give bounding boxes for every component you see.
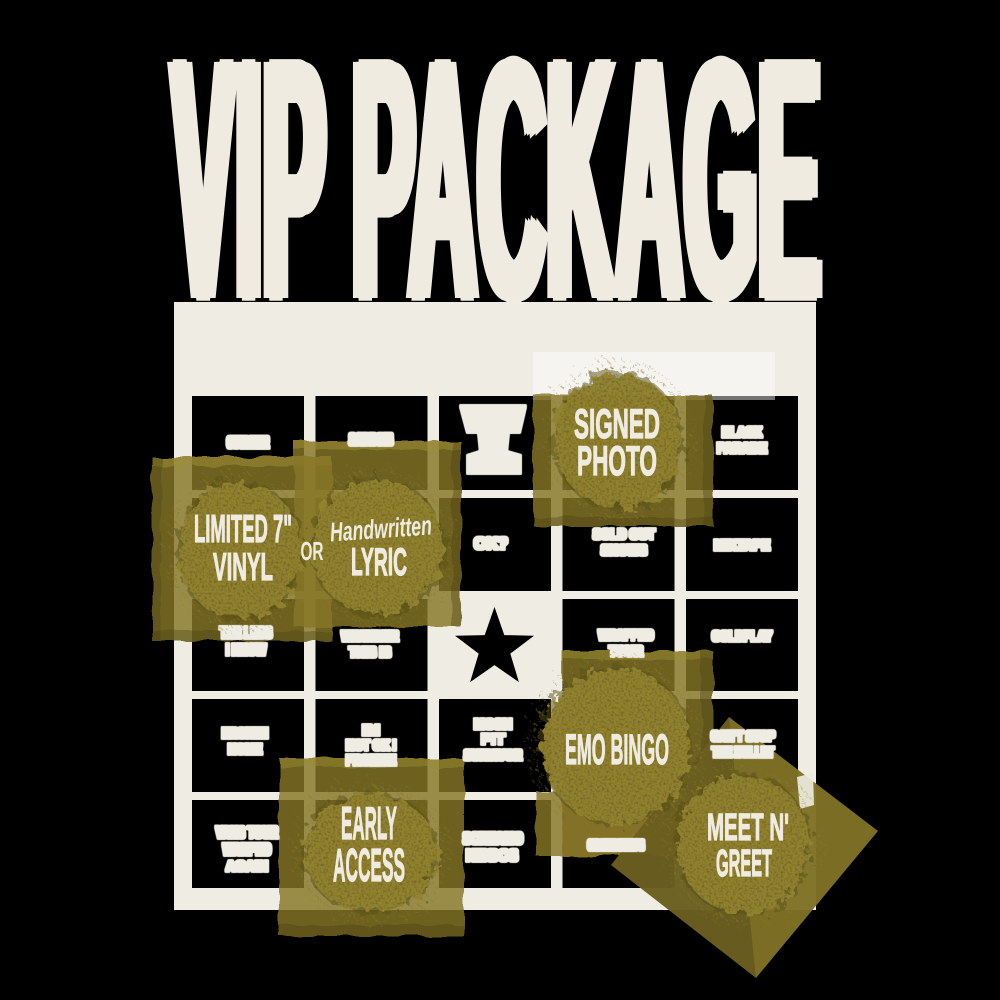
svg-text:OR: OR <box>301 536 324 566</box>
svg-text:THIS IS: THIS IS <box>349 644 391 661</box>
svg-text:HOME: HOME <box>228 741 262 758</box>
svg-text:THE LESS: THE LESS <box>220 625 272 642</box>
svg-text:BROKEN: BROKEN <box>222 725 268 742</box>
svg-text:THE BULLET: THE BULLET <box>712 744 774 761</box>
svg-text:WRAPPED: WRAPPED <box>599 627 654 644</box>
svg-text:PIT: PIT <box>481 731 505 748</box>
svg-text:ACCESS: ACCESS <box>333 839 405 891</box>
svg-text:PHOTO: PHOTO <box>577 437 657 484</box>
svg-text:I KNOW: I KNOW <box>226 642 267 659</box>
svg-text:TOUR: TOUR <box>609 643 643 660</box>
svg-text:LYRIC: LYRIC <box>351 541 407 584</box>
svg-text:AGAIN: AGAIN <box>226 858 268 875</box>
svg-text:PARADE: PARADE <box>717 440 767 457</box>
svg-text:BLACK: BLACK <box>722 424 762 441</box>
svg-text:LIMITED 7": LIMITED 7" <box>194 508 292 551</box>
svg-text:MIXTAPE: MIXTAPE <box>714 537 770 554</box>
svg-text:SURVIVOR: SURVIVOR <box>464 747 522 764</box>
svg-text:PROMISE: PROMISE <box>346 752 396 769</box>
svg-text:WHATEVER: WHATEVER <box>342 628 399 645</box>
svg-text:GUYLINER: GUYLINER <box>227 433 269 452</box>
svg-text:WARPED: WARPED <box>223 840 271 859</box>
svg-text:SHOWS: SHOWS <box>601 542 647 559</box>
svg-text:GREET: GREET <box>716 843 772 885</box>
svg-text:OK?: OK? <box>474 534 508 553</box>
svg-text:EMO BINGO: EMO BINGO <box>565 726 669 774</box>
svg-text:CROWDSURFS: CROWDSURFS <box>588 837 644 854</box>
svg-text:CAN'T STOP: CAN'T STOP <box>711 728 775 745</box>
svg-text:VINYL: VINYL <box>213 546 273 589</box>
svg-text:COLDPLAY: COLDPLAY <box>712 628 772 645</box>
svg-text:SADBOIS: SADBOIS <box>349 430 393 449</box>
svg-text:SOLD OUT: SOLD OUT <box>593 526 655 543</box>
svg-text:KIDDOS: KIDDOS <box>466 846 518 865</box>
